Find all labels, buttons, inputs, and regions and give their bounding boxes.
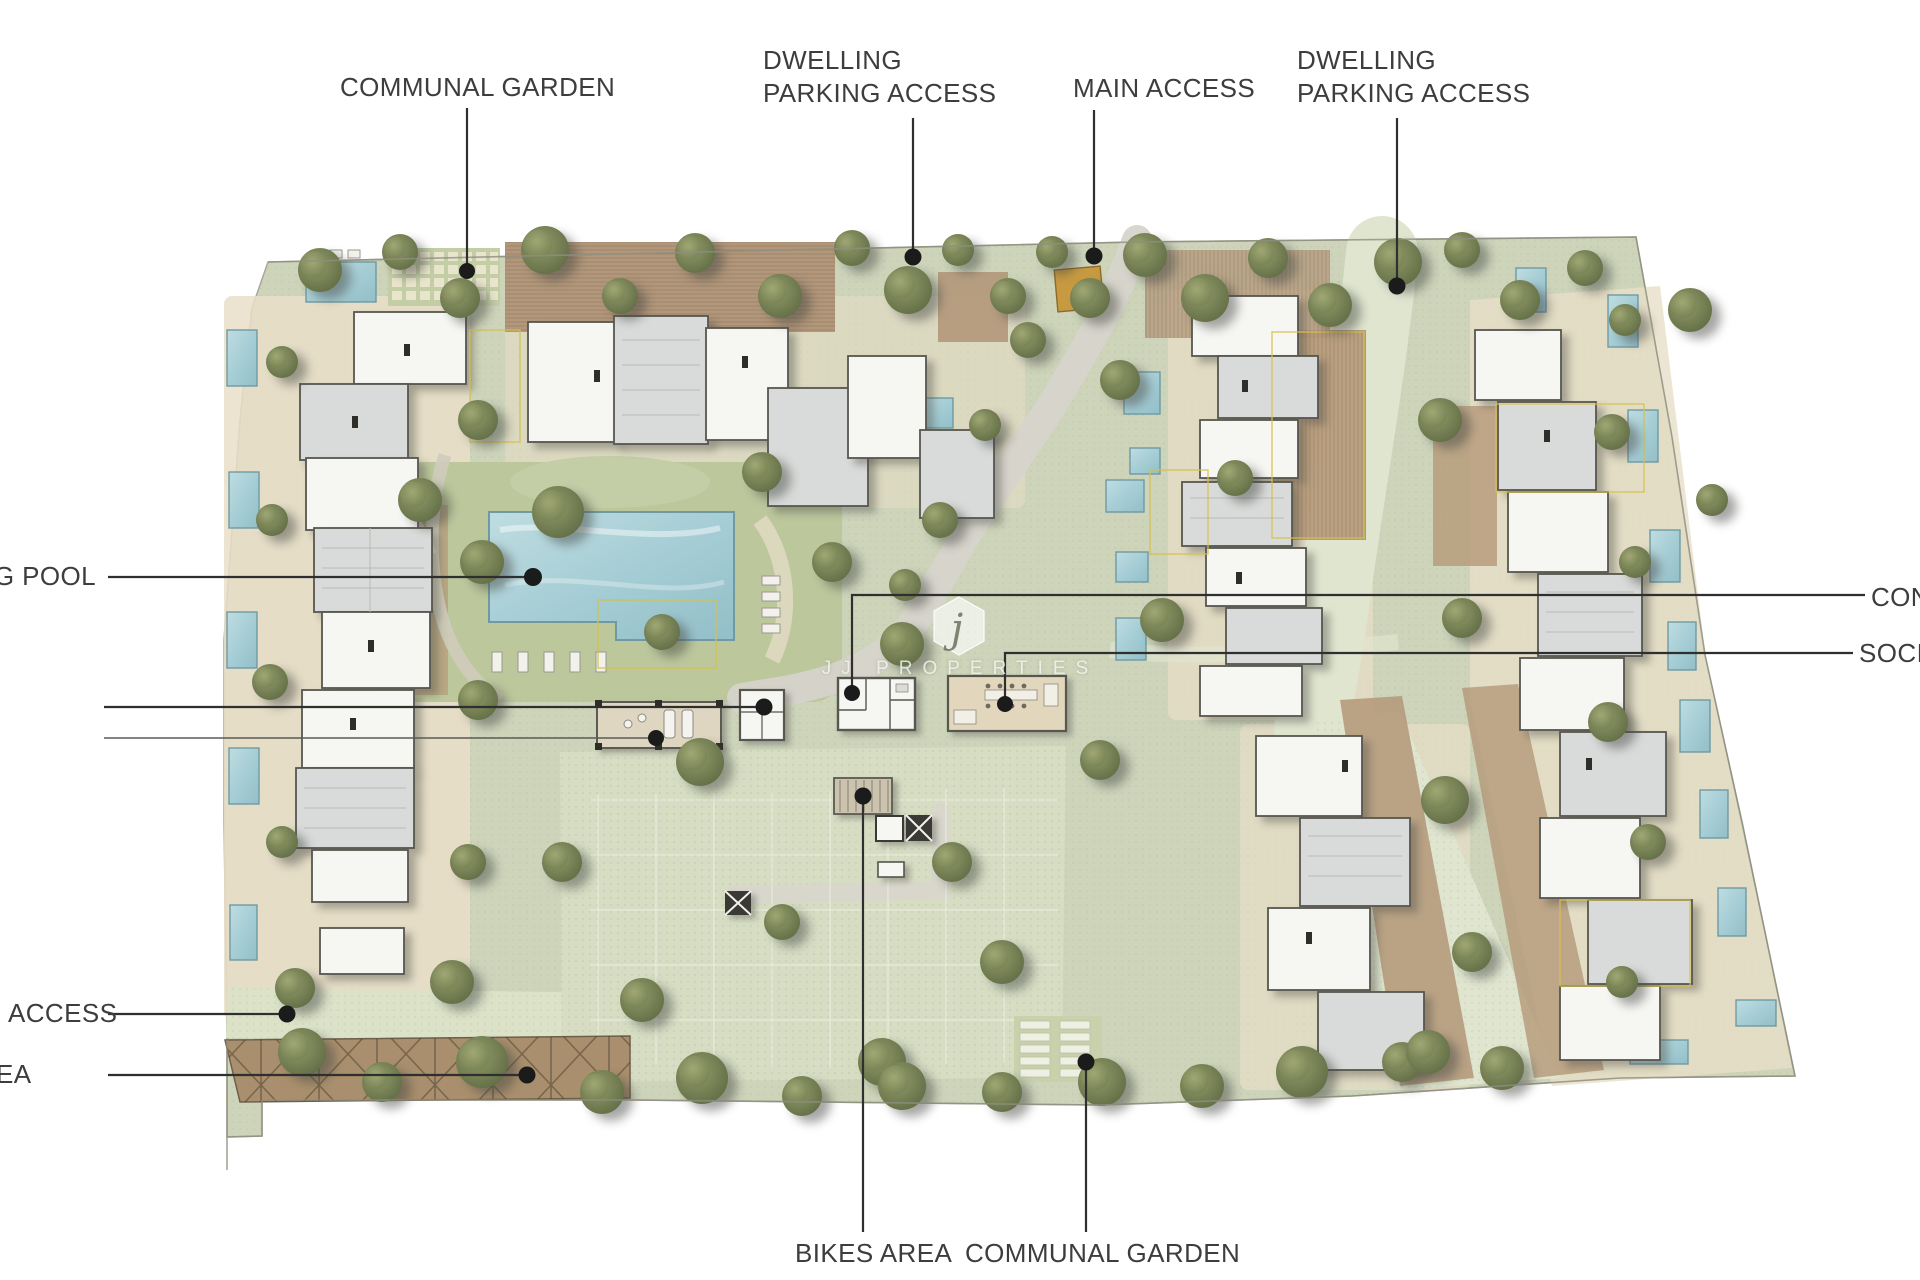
leader-dwelling-parking-left [905, 118, 922, 266]
label-dwelling-parking-left: DWELLING PARKING ACCESS [763, 44, 996, 110]
site-plan-page: j [0, 0, 1920, 1280]
label-dwelling-parking-right: DWELLING PARKING ACCESS [1297, 44, 1530, 110]
label-dwelling-parking-left-line1: DWELLING [763, 44, 996, 77]
label-communal-garden-bottom: COMMUNAL GARDEN [965, 1237, 1240, 1270]
label-main-access: MAIN ACCESS [1073, 72, 1255, 105]
label-dwelling-parking-right-line2: PARKING ACCESS [1297, 77, 1530, 110]
label-dwelling-parking-left-line2: PARKING ACCESS [763, 77, 996, 110]
label-bikes-area: BIKES AREA [795, 1237, 952, 1270]
brand-watermark: JJ PROPERTIES [770, 658, 1150, 680]
site-plan-graphic: j [0, 0, 1920, 1280]
label-dwelling-parking-right-line1: DWELLING [1297, 44, 1530, 77]
label-area-truncated: EA [0, 1058, 31, 1091]
label-access-truncated: ACCESS [8, 997, 117, 1030]
leader-main-access [1086, 110, 1103, 265]
label-swimming-pool-truncated: NG POOL [0, 560, 96, 593]
label-social-truncated: SOCIA [1859, 637, 1920, 670]
label-concierge-truncated: CON [1871, 581, 1920, 614]
label-communal-garden-top: COMMUNAL GARDEN [340, 71, 615, 104]
